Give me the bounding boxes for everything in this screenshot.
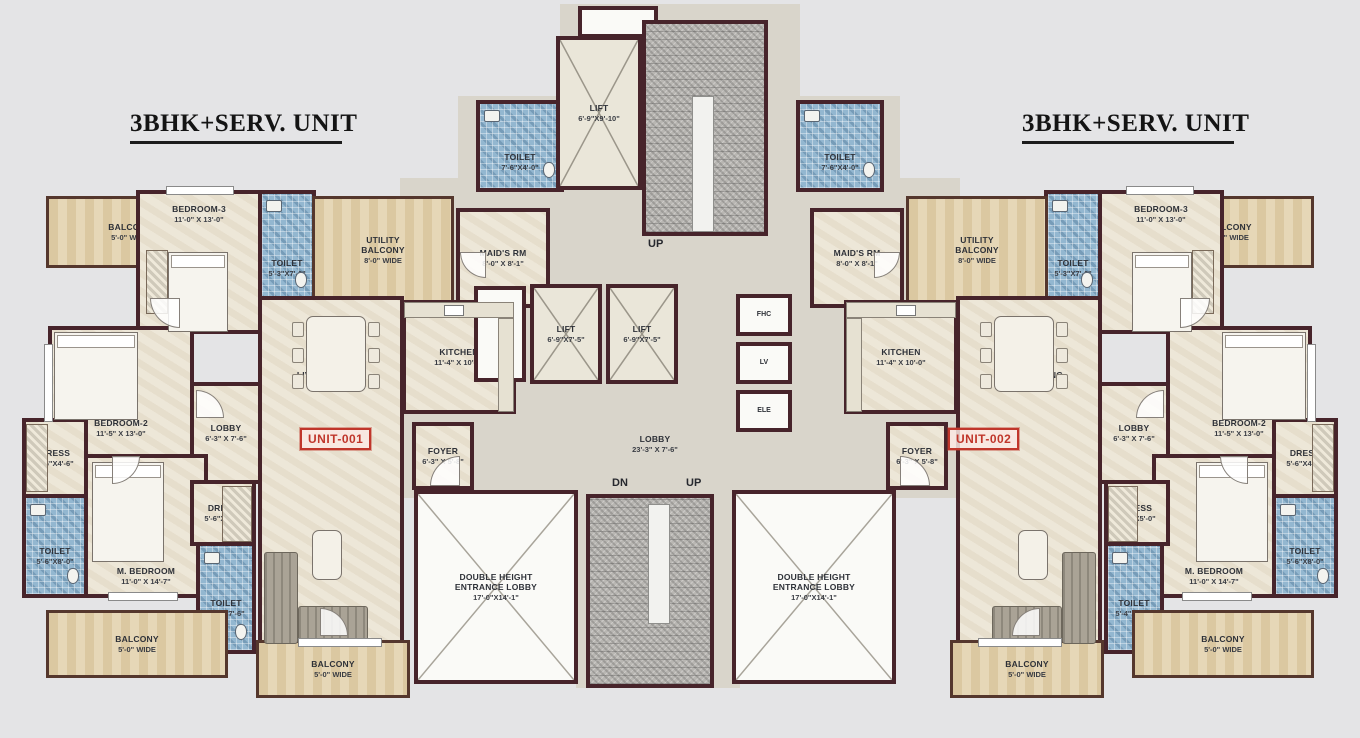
shaft-ele: ELE [736,390,792,432]
shaft-lv: LV [736,342,792,384]
lobby-cross-lines [736,494,892,680]
unit-tag-002: UNIT-002 [948,428,1019,450]
lift-a: LIFT6'-9"X7'-5" [530,284,602,384]
entrance-lobby-right: DOUBLE HEIGHTENTRANCE LOBBY17'-0"X14'-1" [732,490,896,684]
wardrobe [1312,424,1334,492]
window [166,186,234,195]
toilet-bedroom3-right: TOILET5'-3"X7'-6" [1044,190,1102,302]
up-label-top: UP [648,238,663,250]
unit-title-left: 3BHK+SERV. UNIT [130,110,342,144]
bed [1222,332,1306,420]
wardrobe [1108,486,1138,542]
balcony-bottom-center-left: BALCONY5'-0" WIDE [256,640,410,698]
kitchen-counter [498,318,514,412]
center-table [1018,530,1048,580]
lift-cross-lines [560,40,638,186]
unit-title-right: 3BHK+SERV. UNIT [1022,110,1234,144]
shaft-fhc: FHC [736,294,792,336]
window [1307,344,1316,422]
lift-cross-lines [610,288,674,380]
utility-balcony-left: UTILITYBALCONY8'-0" WIDE [312,196,454,304]
wardrobe [222,486,252,542]
lobby-cross-lines [418,494,574,680]
dining-table [306,316,366,392]
chair [368,348,380,363]
chair [1056,348,1068,363]
center-table [312,530,342,580]
sofa [264,552,298,644]
unit-tag-001: UNIT-001 [300,428,371,450]
toilet-master-left: TOILET5'-6"X8'-0" [22,494,88,598]
balcony-bottom-center-right: BALCONY5'-0" WIDE [950,640,1104,698]
toilet-master-right: TOILET5'-6"X8'-0" [1272,494,1338,598]
chair [1056,322,1068,337]
dining-table [994,316,1054,392]
chair [292,348,304,363]
balcony-bottom-right: BALCONY5'-0" WIDE [1132,610,1314,678]
chair [368,374,380,389]
wardrobe [26,424,48,492]
window [108,592,178,601]
window [1182,592,1252,601]
main-lobby-label: LOBBY 23'-3" X 7'-6" [590,434,720,455]
stair-landing-bottom [648,504,670,624]
chair [292,322,304,337]
lift-top: LIFT6'-9"X9'-10" [556,36,642,190]
floor-plan: BALCONY5'-0" WIDE BEDROOM-311'-0" X 13'-… [0,0,1360,738]
chair [1056,374,1068,389]
kitchen-counter [846,318,862,412]
sofa [1062,552,1096,644]
maid-toilet-left: TOILET7'-6"X4'-0" [476,100,564,192]
window [44,344,53,422]
kitchen-sink [444,305,464,316]
chair [980,374,992,389]
maid-toilet-right: TOILET7'-6"X4'-0" [796,100,884,192]
chair [980,348,992,363]
kitchen-sink [896,305,916,316]
chair [292,374,304,389]
up-label-bottom: UP [686,477,701,489]
stair-landing-top [692,96,714,232]
balcony-bottom-left: BALCONY5'-0" WIDE [46,610,228,678]
utility-balcony-right: UTILITYBALCONY8'-0" WIDE [906,196,1048,304]
window [978,638,1062,647]
toilet-bedroom3-left: TOILET5'-3"X7'-6" [258,190,316,302]
staircase-bottom [586,494,714,688]
staircase-top [642,20,768,236]
lift-b: LIFT6'-9"X7'-5" [606,284,678,384]
dn-label: DN [612,477,628,489]
bed [54,332,138,420]
window [1126,186,1194,195]
window [298,638,382,647]
lift-cross-lines [534,288,598,380]
entrance-lobby-left: DOUBLE HEIGHTENTRANCE LOBBY17'-0"X14'-1" [414,490,578,684]
chair [980,322,992,337]
chair [368,322,380,337]
